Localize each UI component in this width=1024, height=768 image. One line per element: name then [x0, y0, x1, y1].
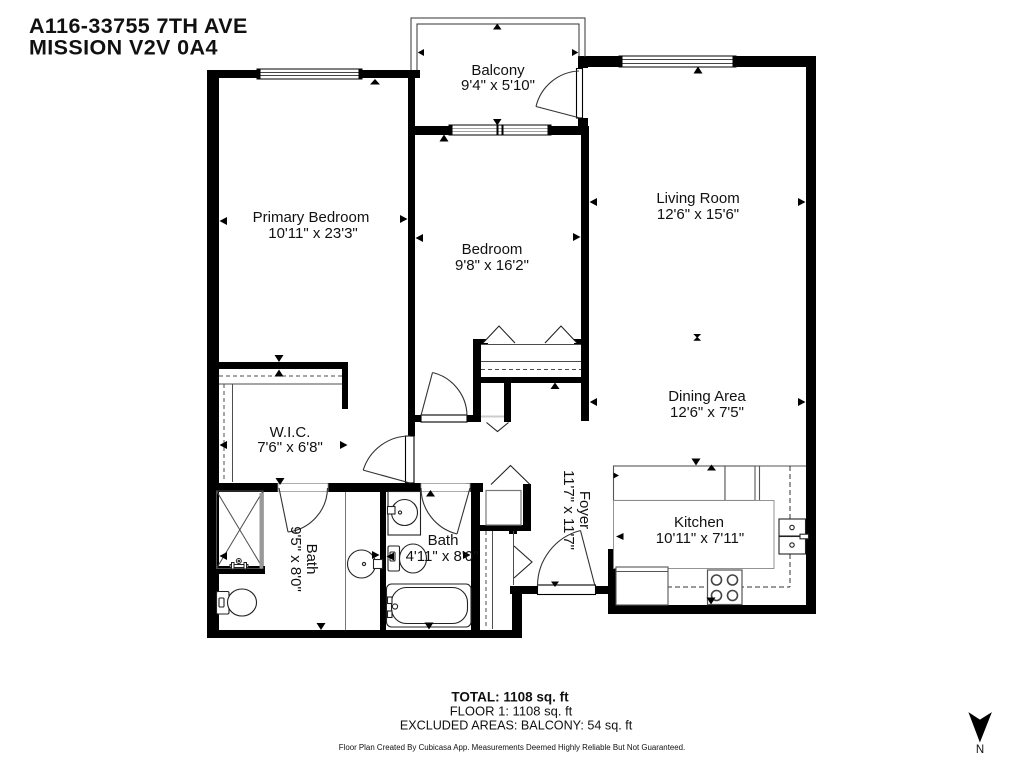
- svg-text:9'8" x 16'2": 9'8" x 16'2": [455, 257, 529, 274]
- svg-text:Living Room: Living Room: [656, 190, 739, 207]
- svg-text:10'11" x 7'11": 10'11" x 7'11": [656, 530, 744, 547]
- svg-text:Kitchen: Kitchen: [674, 514, 724, 531]
- svg-text:10'11" x 23'3": 10'11" x 23'3": [268, 225, 358, 242]
- svg-text:12'6" x 7'5": 12'6" x 7'5": [670, 404, 744, 421]
- svg-text:12'6" x 15'6": 12'6" x 15'6": [657, 206, 739, 223]
- svg-text:TOTAL: 1108 sq. ft: TOTAL: 1108 sq. ft: [451, 690, 569, 705]
- svg-text:FLOOR 1: 1108 sq. ft: FLOOR 1: 1108 sq. ft: [450, 704, 573, 719]
- svg-text:A116-33755 7TH AVE: A116-33755 7TH AVE: [29, 14, 248, 38]
- svg-text:Bath9'5" x 8'0": Bath9'5" x 8'0": [287, 526, 320, 592]
- svg-text:EXCLUDED AREAS: BALCONY: 54 sq: EXCLUDED AREAS: BALCONY: 54 sq. ft: [400, 719, 633, 733]
- svg-text:Bedroom: Bedroom: [462, 241, 523, 258]
- svg-text:4'11" x 8'0": 4'11" x 8'0": [406, 548, 479, 565]
- svg-text:9'4" x 5'10": 9'4" x 5'10": [461, 77, 535, 94]
- svg-text:N: N: [976, 744, 984, 756]
- svg-text:7'6" x 6'8": 7'6" x 6'8": [257, 439, 323, 456]
- svg-text:Foyer11'7" x 11'7": Foyer11'7" x 11'7": [560, 470, 593, 550]
- svg-text:Floor Plan Created By Cubicasa: Floor Plan Created By Cubicasa App. Meas…: [339, 743, 686, 752]
- svg-text:MISSION V2V 0A4: MISSION V2V 0A4: [29, 36, 218, 60]
- svg-text:Primary Bedroom: Primary Bedroom: [253, 209, 370, 226]
- svg-text:Dining Area: Dining Area: [668, 388, 746, 405]
- svg-text:Bath: Bath: [428, 532, 459, 549]
